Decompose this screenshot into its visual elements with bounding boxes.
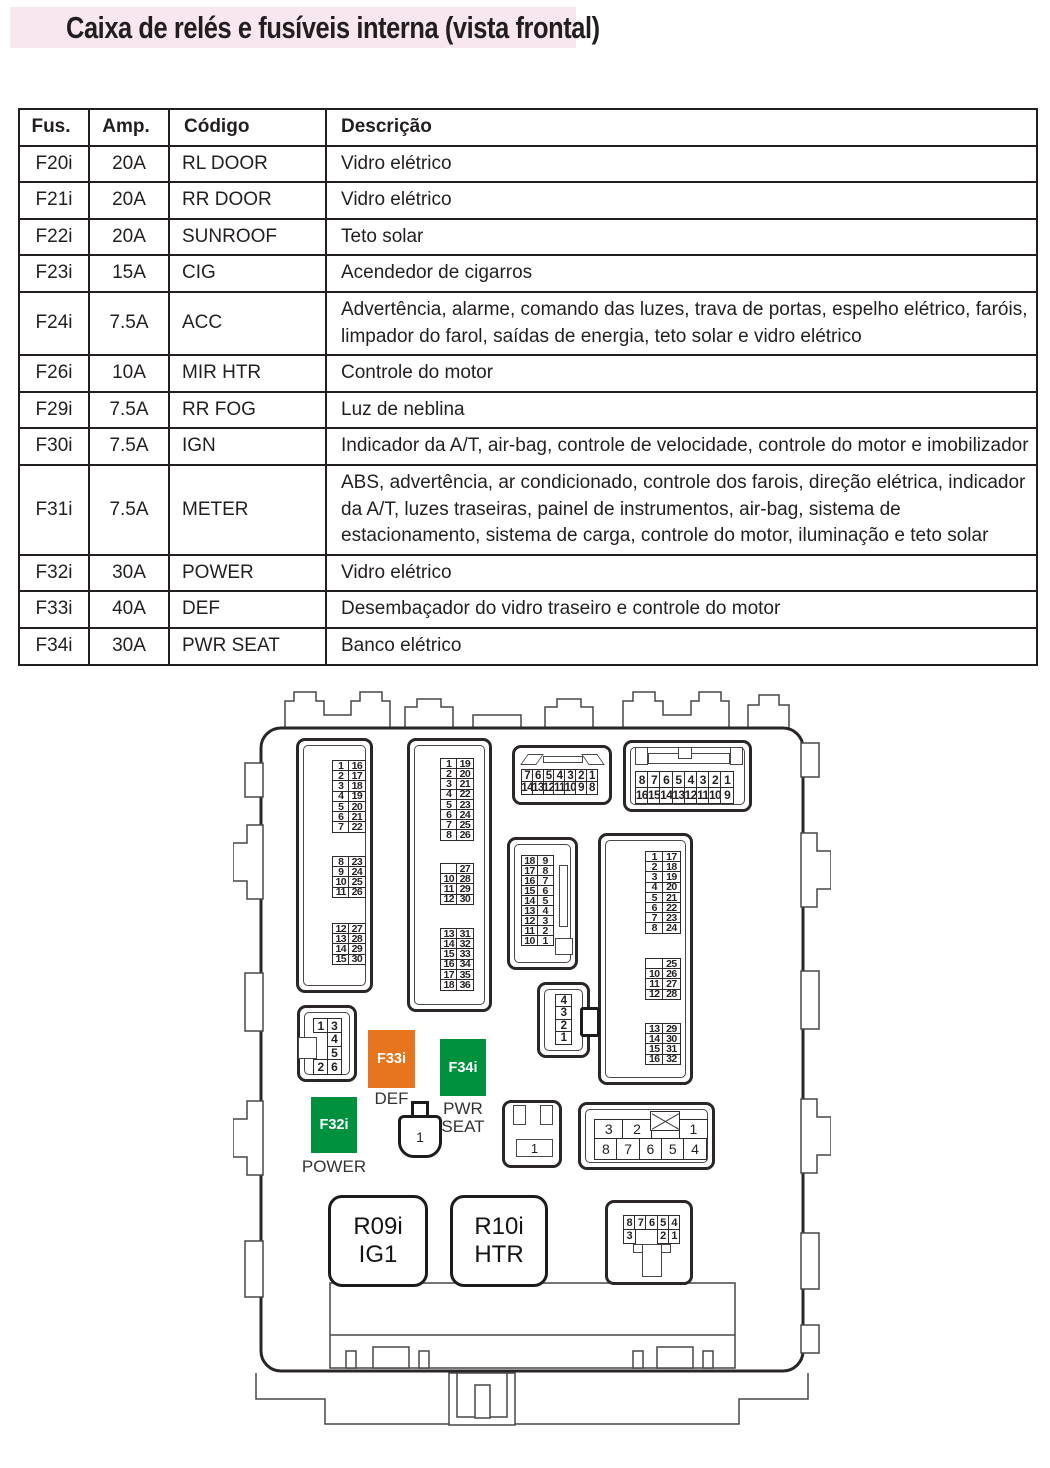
- connector-quad-latch: [580, 1007, 600, 1037]
- fuse-cell: F29i: [19, 392, 89, 429]
- fuse-cell: F23i: [19, 255, 89, 292]
- connector-a-pins-top: 116217318419520621722: [332, 760, 366, 833]
- fuse-f33i: F33i: [368, 1030, 415, 1088]
- table-row: F24i7.5AACCAdvertência, alarme, comando …: [19, 292, 1037, 355]
- connector-j-pin: 1: [516, 1139, 553, 1157]
- table-row: F22i20ASUNROOFTeto solar: [19, 219, 1037, 256]
- code-cell: RR DOOR: [169, 182, 326, 219]
- fuse-cell: F32i: [19, 555, 89, 592]
- pin-cell: 12: [645, 989, 664, 1001]
- header-descricao: Descrição: [326, 109, 1037, 146]
- connector-j-tab-left: [513, 1105, 526, 1125]
- fuse-cell: F34i: [19, 628, 89, 665]
- relay-r10i-code: HTR: [474, 1241, 523, 1269]
- connector-b-pins-mid: 27102811291230: [440, 863, 474, 905]
- plug-round: 1: [398, 1102, 442, 1158]
- pin-cell: 11: [332, 887, 350, 899]
- fuse-table: Fus. Amp. Código Descrição F20i20ARL DOO…: [18, 108, 1038, 666]
- connector-i-t-stem: [642, 1244, 662, 1277]
- fuse-table-body: F20i20ARL DOORVidro elétricoF21i20ARR DO…: [19, 146, 1037, 665]
- amp-cell: 7.5A: [89, 292, 169, 355]
- fuse-f32i: F32i: [311, 1097, 357, 1153]
- amp-cell: 7.5A: [89, 392, 169, 429]
- fuse-f32i-label: POWER: [293, 1158, 375, 1176]
- code-cell: ACC: [169, 292, 326, 355]
- fuse-f34i-label: PWR SEAT: [433, 1100, 493, 1136]
- desc-cell: Luz de neblina: [326, 392, 1037, 429]
- code-cell: DEF: [169, 591, 326, 628]
- connector-f: 117218319420521622723824 25102611271228 …: [598, 833, 693, 1085]
- connector-h-pins: 32187654: [594, 1119, 708, 1160]
- relay-r09i-code: IG1: [359, 1241, 398, 1269]
- pin-cell: 1: [668, 1229, 681, 1244]
- pin-cell: 3: [623, 1229, 636, 1244]
- desc-cell: Controle do motor: [326, 355, 1037, 392]
- connector-g-pins: 134526: [313, 1018, 342, 1075]
- pin-cell: 8: [645, 922, 664, 934]
- pin-cell: 8: [586, 781, 598, 795]
- fuse-box-diagram: 116217318419520621722 82392410251126 122…: [233, 685, 831, 1463]
- fuse-cell: F21i: [19, 182, 89, 219]
- pin-cell: 8: [594, 1138, 618, 1160]
- desc-cell: Indicador da A/T, air-bag, controle de v…: [326, 428, 1037, 465]
- code-cell: POWER: [169, 555, 326, 592]
- amp-cell: 20A: [89, 219, 169, 256]
- desc-cell: Vidro elétrico: [326, 146, 1037, 183]
- fuse-cell: F31i: [19, 465, 89, 555]
- amp-cell: 40A: [89, 591, 169, 628]
- table-row: F31i7.5AMETERABS, advertência, ar condic…: [19, 465, 1037, 555]
- connector-c-key-left: [520, 754, 544, 765]
- pin-cell: 1: [679, 1119, 709, 1139]
- connector-d-key-mid: [678, 747, 692, 759]
- table-row: F20i20ARL DOORVidro elétrico: [19, 146, 1037, 183]
- code-cell: RL DOOR: [169, 146, 326, 183]
- connector-i: 87654321: [605, 1200, 693, 1285]
- connector-d: 87654321161514131211109: [623, 740, 752, 812]
- code-cell: SUNROOF: [169, 219, 326, 256]
- connector-quad: 4321: [537, 982, 590, 1058]
- connector-a: 116217318419520621722 82392410251126 122…: [296, 738, 373, 993]
- connector-a-pins-bottom: 1227132814291530: [332, 923, 366, 965]
- table-row: F33i40ADEFDesembaçador do vidro traseiro…: [19, 591, 1037, 628]
- connector-e-latch: [559, 865, 568, 927]
- connector-c: 7654321141312111098: [512, 745, 612, 805]
- amp-cell: 30A: [89, 628, 169, 665]
- pin-cell: 9: [720, 787, 734, 804]
- table-row: F21i20ARR DOORVidro elétrico: [19, 182, 1037, 219]
- pin-cell: 6: [639, 1138, 663, 1160]
- pin-cell: 7: [616, 1138, 640, 1160]
- table-row: F29i7.5ARR FOGLuz de neblina: [19, 392, 1037, 429]
- header-codigo: Código: [169, 109, 326, 146]
- desc-cell: Vidro elétrico: [326, 555, 1037, 592]
- amp-cell: 7.5A: [89, 428, 169, 465]
- table-row: F32i30APOWERVidro elétrico: [19, 555, 1037, 592]
- connector-c-key-bar: [543, 756, 583, 763]
- code-cell: RR FOG: [169, 392, 326, 429]
- fuse-f34i: F34i: [440, 1039, 486, 1096]
- table-row: F23i15ACIGAcendedor de cigarros: [19, 255, 1037, 292]
- connector-f-pins-bottom: 1329143015311632: [645, 1023, 681, 1065]
- code-cell: IGN: [169, 428, 326, 465]
- connector-a-pins-mid: 82392410251126: [332, 856, 366, 898]
- desc-cell: Teto solar: [326, 219, 1037, 256]
- pin-cell: 2: [622, 1119, 652, 1139]
- connector-b-pins-bottom: 133114321533163417351836: [440, 928, 474, 991]
- pin-cell: 15: [332, 954, 350, 966]
- connector-d-pins: 87654321161514131211109: [635, 771, 734, 804]
- amp-cell: 20A: [89, 146, 169, 183]
- pin-cell: 3: [594, 1119, 624, 1139]
- relay-r09i: R09i IG1: [328, 1195, 428, 1287]
- pin-cell: 18: [440, 979, 458, 991]
- amp-cell: 30A: [89, 555, 169, 592]
- amp-cell: 15A: [89, 255, 169, 292]
- table-row: F34i30APWR SEATBanco elétrico: [19, 628, 1037, 665]
- plug-round-body: 1: [398, 1115, 442, 1158]
- connector-b: 119220321422523624725826 27102811291230 …: [407, 738, 492, 1012]
- pin-cell: 10: [521, 935, 538, 946]
- pin-cell: 26: [348, 887, 366, 899]
- pin-cell: [650, 1111, 680, 1131]
- pin-cell: 30: [348, 954, 366, 966]
- title-strip: Caixa de relés e fusíveis interna (vista…: [10, 7, 576, 48]
- connector-j: 1: [502, 1100, 562, 1168]
- connector-e: 189178167156145134123112101: [507, 837, 578, 970]
- fuse-cell: F26i: [19, 355, 89, 392]
- connector-quad-pins: 4321: [555, 994, 572, 1045]
- pin-cell: 1: [555, 1031, 572, 1045]
- code-cell: MIR HTR: [169, 355, 326, 392]
- connector-c-pins: 7654321141312111098: [521, 769, 598, 795]
- pin-cell: 1: [720, 771, 734, 788]
- desc-cell: Acendedor de cigarros: [326, 255, 1037, 292]
- pin-cell: 6: [327, 1059, 342, 1074]
- code-cell: PWR SEAT: [169, 628, 326, 665]
- connector-f-pins-mid: 25102611271228: [645, 958, 681, 1000]
- table-row: F30i7.5AIGNIndicador da A/T, air-bag, co…: [19, 428, 1037, 465]
- header-fus: Fus.: [19, 109, 89, 146]
- desc-cell: Advertência, alarme, comando das luzes, …: [326, 292, 1037, 355]
- header-amp: Amp.: [89, 109, 169, 146]
- pin-cell: 32: [662, 1054, 681, 1066]
- fuse-cell: F30i: [19, 428, 89, 465]
- connector-b-pins-top: 119220321422523624725826: [440, 758, 474, 841]
- manual-page: Caixa de relés e fusíveis interna (vista…: [0, 0, 1050, 1468]
- pin-cell: 7: [332, 821, 350, 833]
- pin-cell: 28: [662, 989, 681, 1001]
- connector-e-lock-box: [555, 938, 573, 955]
- page-title: Caixa de relés e fusíveis interna (vista…: [66, 10, 600, 46]
- table-header-row: Fus. Amp. Código Descrição: [19, 109, 1037, 146]
- pin-cell: 22: [348, 821, 366, 833]
- connector-j-tab-right: [540, 1105, 553, 1125]
- pin-cell: 26: [456, 829, 474, 841]
- pin-cell: 24: [662, 922, 681, 934]
- pin-cell: 1: [537, 935, 554, 946]
- pin-cell: 8: [440, 829, 458, 841]
- pin-cell: 16: [645, 1054, 664, 1066]
- pin-cell: 30: [456, 894, 474, 906]
- fuse-cell: F24i: [19, 292, 89, 355]
- fuse-cell: F20i: [19, 146, 89, 183]
- relay-r10i-name: R10i: [474, 1213, 523, 1241]
- connector-h: 32187654: [578, 1102, 715, 1170]
- amp-cell: 10A: [89, 355, 169, 392]
- connector-e-pins: 189178167156145134123112101: [521, 855, 554, 946]
- connector-d-key-right: [730, 747, 743, 765]
- pin-cell: 12: [440, 894, 458, 906]
- connector-c-key-right: [581, 754, 605, 765]
- fuse-cell: F33i: [19, 591, 89, 628]
- desc-cell: Banco elétrico: [326, 628, 1037, 665]
- pin-cell: 5: [661, 1138, 685, 1160]
- relay-r10i: R10i HTR: [450, 1195, 548, 1287]
- connector-f-pins-top: 117218319420521622723824: [645, 851, 681, 934]
- code-cell: CIG: [169, 255, 326, 292]
- table-row: F26i10AMIR HTRControle do motor: [19, 355, 1037, 392]
- amp-cell: 7.5A: [89, 465, 169, 555]
- fuse-cell: F22i: [19, 219, 89, 256]
- relay-r09i-name: R09i: [353, 1213, 402, 1241]
- pin-cell: 4: [683, 1138, 707, 1160]
- desc-cell: ABS, advertência, ar condicionado, contr…: [326, 465, 1037, 555]
- code-cell: METER: [169, 465, 326, 555]
- desc-cell: Desembaçador do vidro traseiro e control…: [326, 591, 1037, 628]
- pin-cell: 36: [456, 979, 474, 991]
- amp-cell: 20A: [89, 182, 169, 219]
- connector-g: 134526: [297, 1005, 357, 1082]
- connector-i-pins: 87654321: [623, 1215, 680, 1244]
- desc-cell: Vidro elétrico: [326, 182, 1037, 219]
- connector-d-key-left: [635, 747, 648, 765]
